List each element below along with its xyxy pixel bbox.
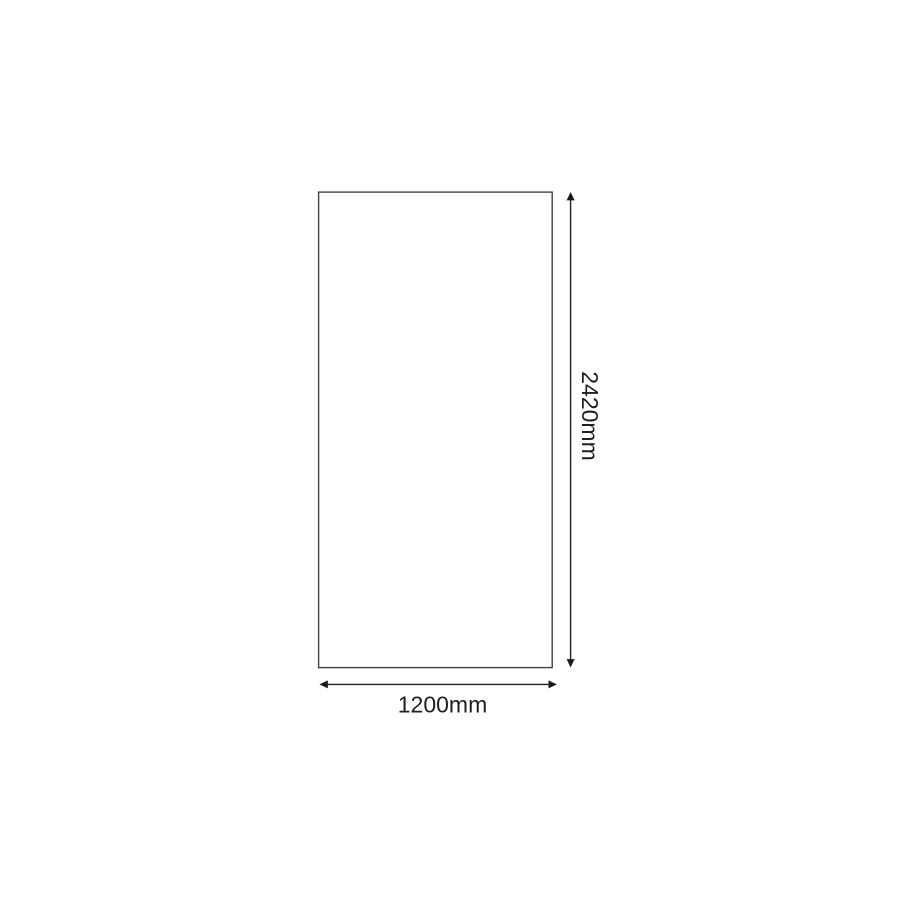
svg-text:1200mm: 1200mm [398, 692, 487, 718]
svg-text:2420mm: 2420mm [577, 371, 603, 460]
